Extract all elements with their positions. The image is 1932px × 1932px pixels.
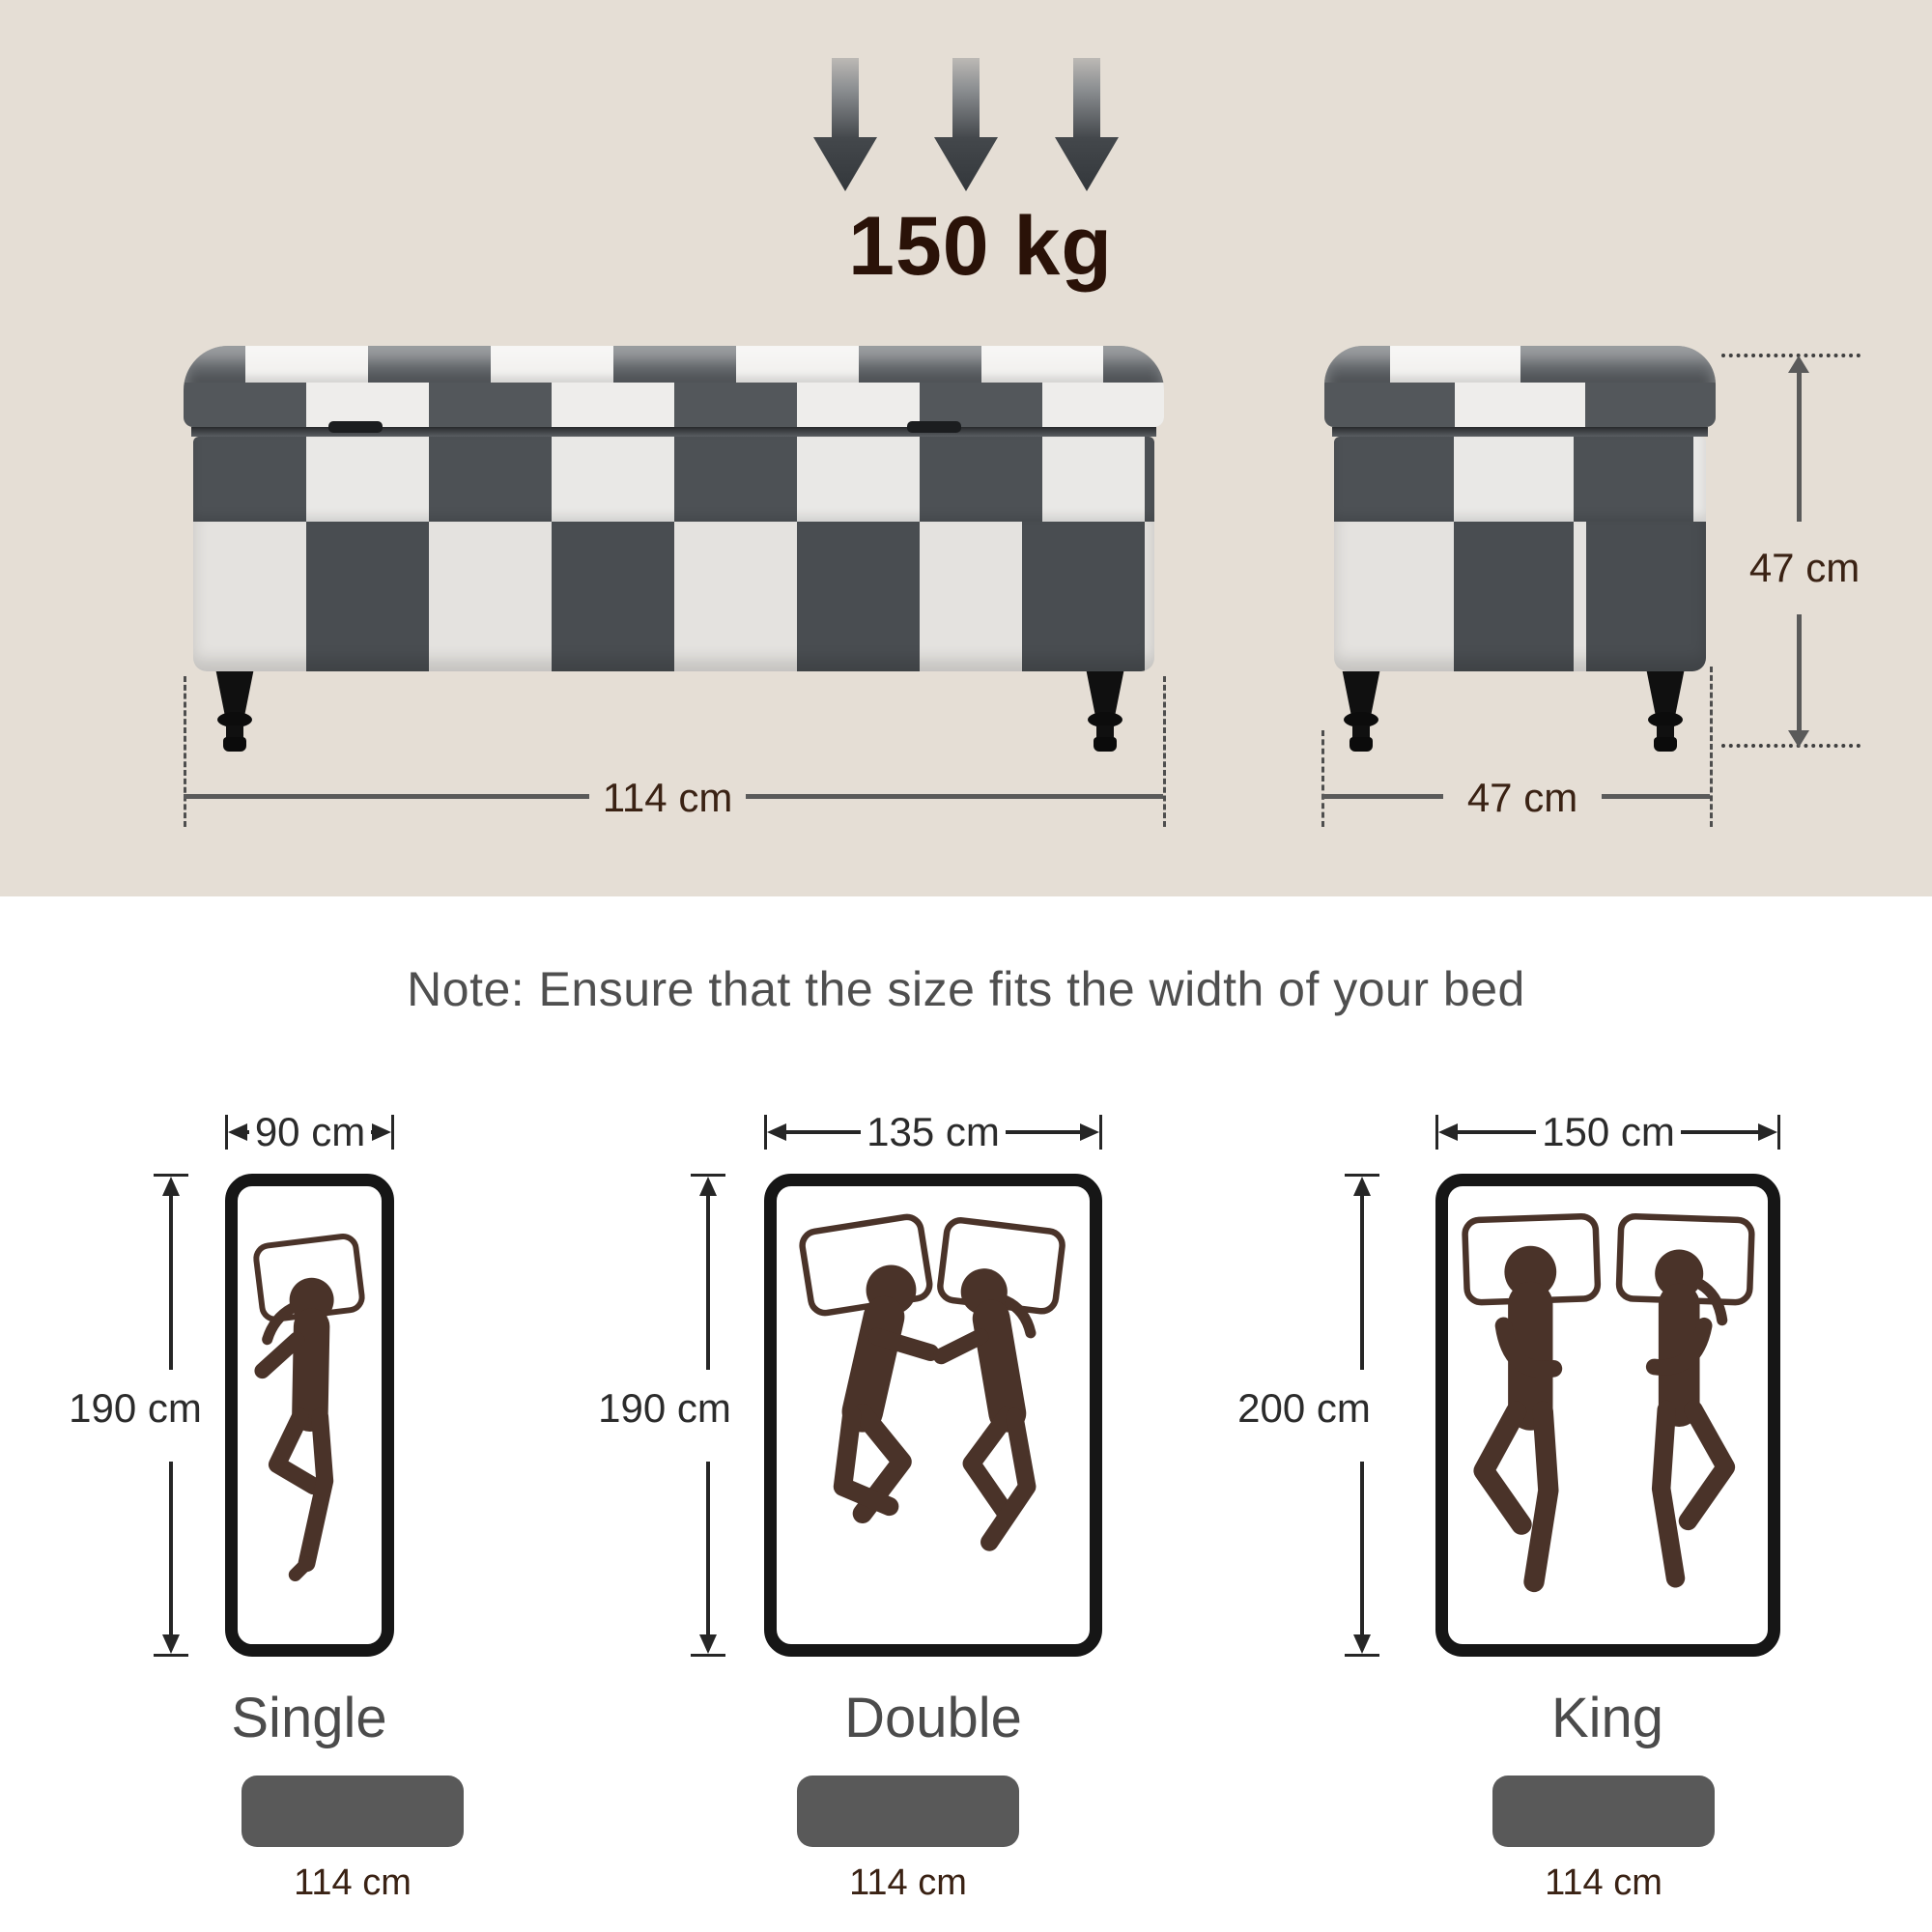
front-width-label: 114 cm	[603, 775, 733, 821]
bench-footprint-label: 114 cm	[797, 1862, 1019, 1904]
bed-width-label: 150 cm	[1542, 1109, 1675, 1155]
bench-footprint-label: 114 cm	[1492, 1862, 1715, 1904]
bench-footprint-label: 114 cm	[241, 1862, 464, 1904]
person-torso	[991, 1319, 1008, 1413]
note-text: Note: Ensure that the size fits the widt…	[0, 961, 1932, 1017]
person-leg	[1534, 1411, 1548, 1581]
sleeper-icon-king	[1448, 1186, 1768, 1644]
bed-length-label: 200 cm	[1237, 1385, 1371, 1432]
person-torso	[310, 1326, 312, 1413]
bench-body	[193, 437, 1154, 671]
bed-size-name: Single	[164, 1686, 454, 1750]
bed-outline-king	[1435, 1174, 1780, 1657]
bench-lid	[184, 346, 1164, 427]
bench-footprint-bar	[241, 1776, 464, 1847]
person-leg	[972, 1415, 1008, 1516]
sleeper-icon-single	[238, 1186, 382, 1644]
sleeper-icon-double	[777, 1186, 1090, 1644]
side-height-label: 47 cm	[1749, 545, 1860, 591]
bench-leg	[1643, 671, 1688, 753]
bench-leg	[1083, 671, 1127, 753]
lid-hinge-icon	[328, 421, 383, 433]
bed-size-name: Double	[788, 1686, 1078, 1750]
side-depth-label: 47 cm	[1467, 775, 1577, 821]
down-arrow-icon	[934, 58, 998, 191]
bench-lid	[1324, 346, 1716, 427]
bed-length-label: 190 cm	[69, 1385, 202, 1432]
bench-body	[1334, 437, 1706, 671]
bench-footprint-bar	[1492, 1776, 1715, 1847]
bed-outline-single	[225, 1174, 394, 1657]
down-arrow-icon	[813, 58, 877, 191]
person-leg	[1662, 1409, 1676, 1577]
down-arrow-icon	[1055, 58, 1119, 191]
storage-bench-infographic: 150 kg	[0, 0, 1932, 1932]
product-dimension-panel: 150 kg	[0, 0, 1932, 896]
weight-capacity-label: 150 kg	[787, 199, 1174, 295]
bench-leg	[1339, 671, 1383, 753]
person-leg	[1484, 1411, 1521, 1524]
person-foot	[296, 1563, 307, 1575]
bed-outline-double	[764, 1174, 1102, 1657]
person-arm	[941, 1337, 980, 1356]
bench-leg	[213, 671, 257, 753]
lid-hinge-icon	[907, 421, 961, 433]
bed-size-name: King	[1463, 1686, 1752, 1750]
bed-length-label: 190 cm	[598, 1385, 731, 1432]
person-leg	[1688, 1409, 1725, 1520]
bench-footprint-bar	[797, 1776, 1019, 1847]
bed-width-label: 90 cm	[255, 1109, 365, 1155]
bed-width-label: 135 cm	[867, 1109, 1000, 1155]
bench-lid-seam	[1332, 427, 1708, 437]
